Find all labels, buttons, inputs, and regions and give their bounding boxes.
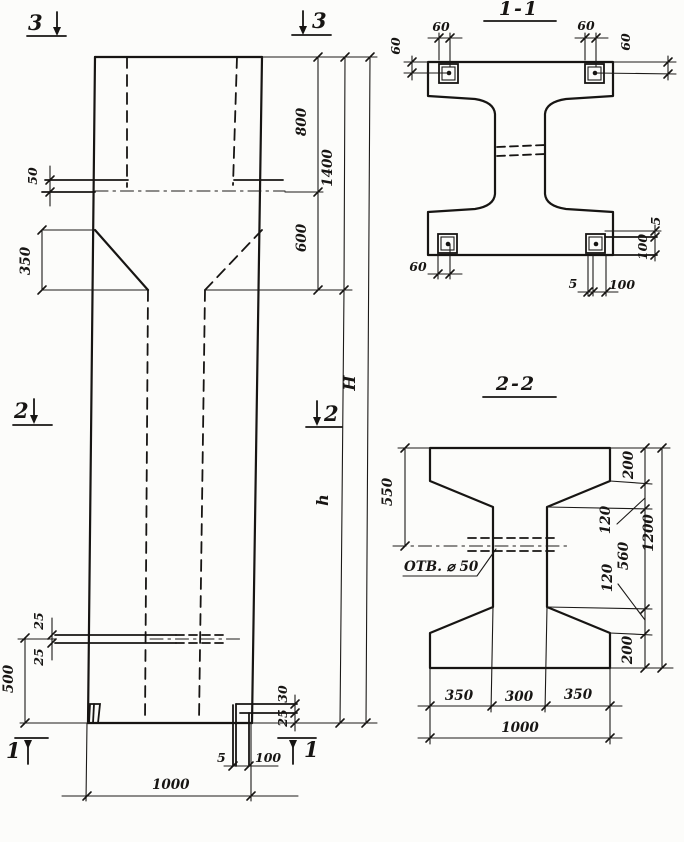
dim-foot-upper-label: 30 bbox=[275, 685, 290, 703]
drawing-sheet: 3 3 2 2 1 1 bbox=[0, 0, 684, 842]
anchor-stud-icon bbox=[594, 242, 599, 247]
dim-2-2-width-label: 1000 bbox=[501, 720, 539, 736]
embedded-angle-bottom-left bbox=[438, 234, 457, 253]
section-2-marker-right: 2 bbox=[306, 401, 342, 427]
dim-upper-total-label: 1400 bbox=[320, 149, 336, 187]
dim-2-2-bottom-right-label: 350 bbox=[564, 687, 593, 703]
section-2-2-extension-lines bbox=[398, 448, 673, 744]
dim-2-2-haunch-top-label: 120 bbox=[598, 505, 614, 534]
section-1-left-label: 1 bbox=[6, 738, 21, 763]
section-arrow-down-icon bbox=[313, 417, 321, 426]
section-2-2-title: 2-2 bbox=[495, 373, 536, 395]
dim-2-2-haunch-bot-label: 120 bbox=[600, 563, 616, 592]
section-3-right-label: 3 bbox=[312, 8, 327, 33]
dim-1-1-tl-v-label: 60 bbox=[388, 37, 403, 55]
section-1-1-title: 1-1 bbox=[499, 0, 539, 20]
dim-1-1-r-5-label: 5 bbox=[648, 217, 663, 226]
section-arrow-down-icon bbox=[299, 26, 307, 35]
section-arrow-down-icon bbox=[30, 415, 38, 424]
section-2-2-hole bbox=[393, 538, 568, 551]
section-1-marker-right: 1 bbox=[278, 737, 319, 764]
dim-2-2-flange-bot-label: 200 bbox=[620, 635, 636, 665]
dim-slot-upper-label: 25 bbox=[31, 612, 46, 630]
dim-1-1-tl-h-label: 60 bbox=[432, 19, 450, 34]
dim-2-2-overall-label: 1200 bbox=[641, 514, 657, 552]
section-3-left-label: 3 bbox=[28, 10, 43, 35]
dim-ledge-label: 50 bbox=[25, 167, 40, 185]
section-1-right-label: 1 bbox=[304, 737, 319, 762]
column-hidden-edges bbox=[127, 57, 262, 721]
dim-1-1-r-100-label: 100 bbox=[635, 234, 650, 260]
dim-top-recess-label: 800 bbox=[294, 107, 310, 136]
hole-callout-label: ОТВ. ⌀ 50 bbox=[404, 559, 479, 575]
section-1-1-view: 1-1 bbox=[388, 0, 676, 296]
mid-slot-lines bbox=[55, 635, 242, 643]
section-1-marker-left: 1 bbox=[6, 738, 48, 764]
dim-2-2-web-label: 560 bbox=[616, 541, 632, 570]
dim-taper-label: 350 bbox=[18, 246, 34, 275]
dim-2-2-flange-top-label: 200 bbox=[621, 450, 637, 480]
dim-1-1-bl-label: 60 bbox=[409, 259, 427, 274]
dim-1-1-tr-h-label: 60 bbox=[577, 18, 595, 33]
embedded-angle-bottom-right bbox=[586, 234, 605, 253]
dim-1-1-br-100-label: 100 bbox=[609, 277, 635, 292]
dim-2-2-bottom-mid-label: 300 bbox=[505, 689, 534, 705]
section-1-1-outline bbox=[428, 62, 613, 255]
dim-1-1-tr-v-label: 60 bbox=[618, 33, 633, 51]
dim-foot-lower-label: 25 bbox=[275, 709, 290, 727]
dim-neck-label: 600 bbox=[294, 223, 310, 252]
section-3-marker-left: 3 bbox=[27, 10, 66, 36]
section-2-left-label: 2 bbox=[13, 398, 29, 423]
dim-2-2-web-top-label: 550 bbox=[380, 477, 396, 506]
dim-base-zone-label: 500 bbox=[1, 664, 17, 693]
section-2-2-outline bbox=[430, 448, 610, 668]
hole-callout: ОТВ. ⌀ 50 bbox=[403, 549, 496, 576]
section-arrow-up-icon bbox=[289, 740, 297, 749]
dim-total-height-label: H bbox=[340, 375, 359, 392]
column-outline bbox=[88, 57, 262, 723]
dim-base-width-label: 1000 bbox=[152, 777, 190, 793]
section-arrow-up-icon bbox=[24, 740, 32, 749]
left-foot-detail bbox=[89, 704, 100, 723]
section-2-2-view: 2-2 ОТВ. ⌀ 50 bbox=[380, 373, 673, 744]
dim-foot-width-label: 100 bbox=[255, 750, 281, 765]
dim-1-1-br-5-label: 5 bbox=[569, 276, 578, 291]
section-3-marker-right: 3 bbox=[292, 8, 331, 35]
section-arrow-down-icon bbox=[53, 27, 61, 36]
section-2-2-dimension-lines bbox=[401, 444, 666, 742]
section-1-1-web-dashes bbox=[497, 145, 545, 156]
dim-foot-plate-label: 5 bbox=[217, 750, 226, 765]
dim-slot-lower-label: 25 bbox=[31, 648, 46, 666]
elevation-view: 3 3 2 2 1 1 bbox=[1, 8, 377, 801]
section-2-right-label: 2 bbox=[323, 401, 339, 426]
dim-shaft-height-label: h bbox=[313, 494, 332, 506]
section-2-marker-left: 2 bbox=[13, 398, 52, 425]
dim-2-2-bottom-left-label: 350 bbox=[445, 688, 474, 704]
drawing-canvas: 3 3 2 2 1 1 bbox=[0, 0, 684, 842]
top-ledge-lines bbox=[42, 180, 285, 192]
